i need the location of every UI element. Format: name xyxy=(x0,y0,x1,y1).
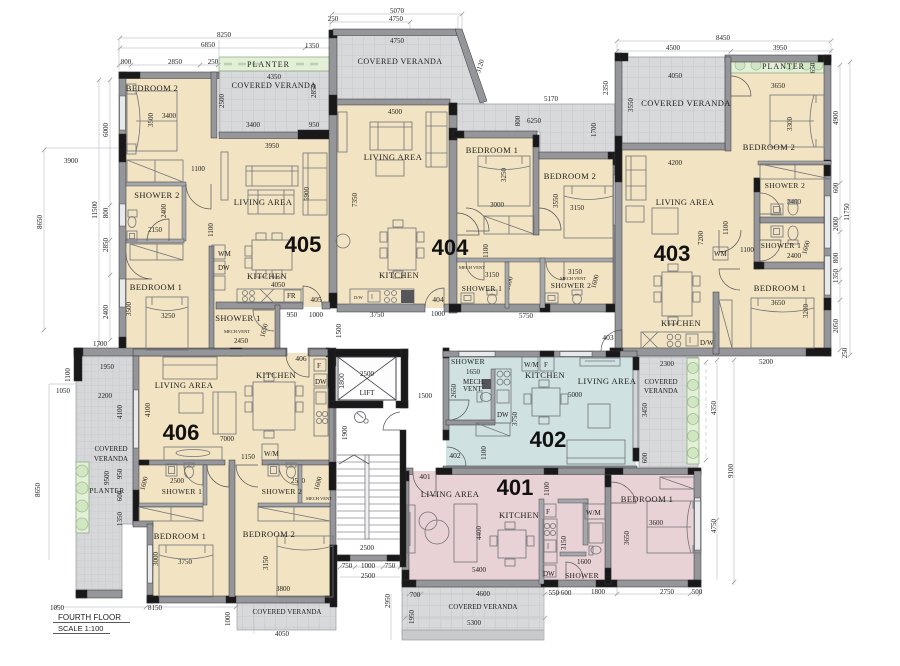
svg-text:SHOWER 2: SHOWER 2 xyxy=(262,487,303,496)
svg-text:KITCHEN: KITCHEN xyxy=(525,370,565,380)
svg-text:4100: 4100 xyxy=(144,403,152,418)
svg-text:3550: 3550 xyxy=(627,98,635,113)
svg-text:2400: 2400 xyxy=(787,198,802,206)
svg-text:4350: 4350 xyxy=(710,401,718,416)
svg-text:403: 403 xyxy=(602,333,614,342)
svg-text:SHOWER: SHOWER xyxy=(451,357,485,366)
svg-text:5170: 5170 xyxy=(544,95,559,103)
svg-text:4050: 4050 xyxy=(271,281,286,289)
svg-text:FOURTH FLOOR: FOURTH FLOOR xyxy=(58,613,121,622)
svg-text:403: 403 xyxy=(654,241,691,266)
svg-text:DW: DW xyxy=(497,411,509,419)
svg-text:BEDROOM 1: BEDROOM 1 xyxy=(466,145,518,155)
svg-text:750: 750 xyxy=(342,562,353,570)
svg-text:SCALE 1:100: SCALE 1:100 xyxy=(58,624,103,633)
svg-text:COVERED VERANDA: COVERED VERANDA xyxy=(449,603,518,611)
svg-text:3650: 3650 xyxy=(771,299,786,307)
svg-text:1100: 1100 xyxy=(207,223,215,237)
svg-text:PLANTER: PLANTER xyxy=(247,60,290,69)
svg-text:COVERED VERANDA: COVERED VERANDA xyxy=(358,57,443,66)
svg-text:KITCHEN: KITCHEN xyxy=(247,271,287,281)
svg-text:404: 404 xyxy=(432,295,444,304)
svg-text:2300: 2300 xyxy=(660,360,675,368)
svg-text:PLANTER: PLANTER xyxy=(90,487,125,495)
svg-text:5300: 5300 xyxy=(467,619,482,627)
svg-text:BEDROOM 2: BEDROOM 2 xyxy=(243,529,295,539)
svg-text:3500: 3500 xyxy=(147,113,155,128)
svg-text:BEDROOM 2: BEDROOM 2 xyxy=(743,142,795,152)
svg-text:BEDROOM 1: BEDROOM 1 xyxy=(154,531,206,541)
svg-text:LIVING AREA: LIVING AREA xyxy=(421,489,480,499)
svg-text:3150: 3150 xyxy=(560,536,568,551)
svg-text:4050: 4050 xyxy=(668,72,683,80)
svg-text:3950: 3950 xyxy=(773,44,788,52)
svg-text:1000: 1000 xyxy=(224,612,232,627)
svg-text:BEDROOM 2: BEDROOM 2 xyxy=(126,83,178,93)
svg-text:MECH VENT: MECH VENT xyxy=(560,276,586,281)
svg-text:3750: 3750 xyxy=(511,412,519,427)
svg-text:4050: 4050 xyxy=(275,630,290,638)
svg-text:3450: 3450 xyxy=(641,403,649,418)
svg-text:2400: 2400 xyxy=(787,252,802,260)
svg-text:3150: 3150 xyxy=(485,271,500,279)
svg-text:2200: 2200 xyxy=(98,392,113,400)
svg-text:1700: 1700 xyxy=(93,340,108,348)
svg-text:1100: 1100 xyxy=(191,165,205,173)
svg-text:WM: WM xyxy=(714,250,728,258)
svg-text:401: 401 xyxy=(497,475,534,500)
svg-text:LIVING AREA: LIVING AREA xyxy=(578,376,637,386)
svg-text:1100: 1100 xyxy=(482,244,490,258)
svg-text:W/M: W/M xyxy=(586,509,602,517)
svg-text:2950: 2950 xyxy=(384,594,392,609)
svg-text:2500: 2500 xyxy=(170,477,185,485)
svg-text:1700: 1700 xyxy=(590,123,598,138)
svg-text:5900: 5900 xyxy=(303,187,311,202)
svg-text:MECH VENT: MECH VENT xyxy=(224,329,250,334)
svg-text:700: 700 xyxy=(410,591,421,599)
svg-text:7000: 7000 xyxy=(220,435,235,443)
svg-text:550 600: 550 600 xyxy=(549,589,572,597)
svg-text:4400: 4400 xyxy=(475,526,483,541)
svg-text:2350: 2350 xyxy=(602,81,610,96)
svg-text:2500: 2500 xyxy=(360,370,375,378)
svg-text:800: 800 xyxy=(102,207,110,218)
svg-text:WM: WM xyxy=(218,250,232,258)
svg-text:COVERED VERANDA: COVERED VERANDA xyxy=(232,81,317,90)
svg-text:PLANTER: PLANTER xyxy=(762,62,805,71)
svg-text:250: 250 xyxy=(208,58,219,66)
svg-text:BEDROOM 1: BEDROOM 1 xyxy=(130,282,182,292)
svg-text:SHOWER 1: SHOWER 1 xyxy=(761,241,802,250)
svg-text:1950: 1950 xyxy=(100,363,115,371)
svg-text:LIVING AREA: LIVING AREA xyxy=(656,197,715,207)
svg-text:W/M: W/M xyxy=(524,361,540,369)
svg-text:3300: 3300 xyxy=(786,117,794,132)
svg-text:3600: 3600 xyxy=(649,519,664,527)
svg-text:COVERED VERANDA: COVERED VERANDA xyxy=(641,98,731,108)
svg-text:2000: 2000 xyxy=(832,217,840,232)
svg-text:D/W: D/W xyxy=(700,339,714,347)
svg-text:F: F xyxy=(546,508,550,516)
svg-text:2500: 2500 xyxy=(360,544,375,552)
svg-text:4600: 4600 xyxy=(476,590,491,598)
svg-text:2500: 2500 xyxy=(361,572,376,580)
svg-text:402: 402 xyxy=(449,451,461,460)
svg-text:1100: 1100 xyxy=(722,221,730,235)
svg-text:950: 950 xyxy=(309,121,320,129)
svg-text:8650: 8650 xyxy=(36,215,44,230)
svg-text:SHOWER 2: SHOWER 2 xyxy=(551,281,592,290)
svg-text:SHOWER 1: SHOWER 1 xyxy=(462,284,503,293)
svg-text:4750: 4750 xyxy=(389,15,404,23)
svg-text:MECH VENT: MECH VENT xyxy=(459,265,485,270)
svg-text:402: 402 xyxy=(530,427,567,452)
svg-text:DW: DW xyxy=(315,378,327,386)
svg-text:LIVING AREA: LIVING AREA xyxy=(364,152,423,162)
svg-text:3000: 3000 xyxy=(490,201,505,209)
svg-text:1800: 1800 xyxy=(591,588,606,596)
svg-text:2750: 2750 xyxy=(660,588,675,596)
svg-text:KITCHEN: KITCHEN xyxy=(661,318,701,328)
svg-text:1600: 1600 xyxy=(577,558,592,566)
svg-text:8650: 8650 xyxy=(34,483,42,498)
svg-text:4100: 4100 xyxy=(116,405,124,420)
svg-text:D/W: D/W xyxy=(354,295,364,300)
svg-text:5000: 5000 xyxy=(568,391,583,399)
svg-text:1100: 1100 xyxy=(543,482,551,496)
svg-text:405: 405 xyxy=(285,232,322,257)
svg-text:4500: 4500 xyxy=(388,108,403,116)
svg-text:1350: 1350 xyxy=(116,512,124,527)
svg-text:600: 600 xyxy=(641,452,649,463)
svg-text:1000: 1000 xyxy=(309,311,324,319)
svg-text:F: F xyxy=(544,361,548,369)
svg-text:1350: 1350 xyxy=(305,42,320,50)
svg-text:3950: 3950 xyxy=(265,142,280,150)
svg-text:406: 406 xyxy=(163,420,200,445)
svg-text:800: 800 xyxy=(514,115,522,126)
svg-text:1650: 1650 xyxy=(466,368,481,376)
svg-text:W/M: W/M xyxy=(264,450,280,458)
svg-text:SHOWER: SHOWER xyxy=(565,571,599,580)
svg-text:1100: 1100 xyxy=(740,246,754,254)
svg-text:1500: 1500 xyxy=(418,392,433,400)
svg-text:4750: 4750 xyxy=(710,519,718,534)
svg-text:8250: 8250 xyxy=(217,31,232,39)
svg-text:KITCHEN: KITCHEN xyxy=(379,270,419,280)
svg-text:1100: 1100 xyxy=(64,368,72,382)
svg-text:5070: 5070 xyxy=(390,7,405,15)
svg-text:4900: 4900 xyxy=(832,111,840,126)
svg-text:7350: 7350 xyxy=(351,193,359,208)
svg-text:5400: 5400 xyxy=(472,566,487,574)
svg-text:DW: DW xyxy=(218,264,230,272)
svg-text:401: 401 xyxy=(419,472,431,481)
svg-text:9100: 9100 xyxy=(727,464,735,479)
svg-text:VERANDA: VERANDA xyxy=(644,387,678,395)
svg-text:600: 600 xyxy=(832,182,840,193)
svg-text:BEDROOM 1: BEDROOM 1 xyxy=(754,283,806,293)
svg-text:8450: 8450 xyxy=(716,34,731,42)
svg-text:5750: 5750 xyxy=(519,312,534,320)
svg-text:3150: 3150 xyxy=(568,268,583,276)
svg-text:405: 405 xyxy=(310,295,322,304)
svg-text:COVERED VERANDA: COVERED VERANDA xyxy=(253,608,322,616)
svg-text:VERANDA: VERANDA xyxy=(94,455,128,463)
svg-text:4200: 4200 xyxy=(668,159,683,167)
svg-text:750: 750 xyxy=(385,562,396,570)
svg-text:2500: 2500 xyxy=(218,94,226,109)
svg-text:950: 950 xyxy=(116,468,124,479)
svg-text:2050: 2050 xyxy=(832,319,840,334)
svg-text:LIVING AREA: LIVING AREA xyxy=(155,380,214,390)
svg-text:2400: 2400 xyxy=(102,305,110,320)
svg-text:LIVING AREA: LIVING AREA xyxy=(234,197,293,207)
svg-text:2650: 2650 xyxy=(450,384,458,399)
svg-text:1050: 1050 xyxy=(56,387,71,395)
svg-text:9500: 9500 xyxy=(103,471,111,486)
svg-text:3650: 3650 xyxy=(623,531,631,546)
svg-text:250: 250 xyxy=(841,347,849,358)
svg-text:1900: 1900 xyxy=(341,426,349,441)
svg-text:2850: 2850 xyxy=(102,238,110,253)
svg-text:1000: 1000 xyxy=(431,310,446,318)
svg-text:COVERED: COVERED xyxy=(644,378,677,386)
svg-text:LIFT: LIFT xyxy=(360,389,376,397)
svg-text:KITCHEN: KITCHEN xyxy=(499,510,539,520)
svg-text:MECH VENT: MECH VENT xyxy=(306,496,332,501)
svg-text:650: 650 xyxy=(809,62,817,73)
svg-text:VENT.: VENT. xyxy=(463,385,483,393)
svg-text:7200: 7200 xyxy=(697,231,705,246)
svg-text:SHOWER 2: SHOWER 2 xyxy=(134,190,179,200)
svg-text:6000: 6000 xyxy=(102,123,110,138)
svg-text:SHOWER 1: SHOWER 1 xyxy=(215,313,260,323)
svg-text:F: F xyxy=(317,362,321,370)
svg-text:1950: 1950 xyxy=(408,610,416,625)
svg-text:6850: 6850 xyxy=(201,41,216,49)
svg-text:2450: 2450 xyxy=(234,337,249,345)
svg-text:FR: FR xyxy=(287,292,296,300)
svg-text:1050: 1050 xyxy=(50,604,65,612)
svg-text:3550: 3550 xyxy=(552,194,560,209)
svg-text:250: 250 xyxy=(328,15,339,23)
svg-text:800: 800 xyxy=(832,252,840,263)
svg-text:3800: 3800 xyxy=(276,585,291,593)
svg-text:3900: 3900 xyxy=(64,157,79,165)
svg-text:4750: 4750 xyxy=(390,37,405,45)
svg-text:800: 800 xyxy=(121,58,132,66)
svg-text:1000: 1000 xyxy=(361,562,376,570)
svg-text:1350: 1350 xyxy=(832,269,840,284)
svg-text:5200: 5200 xyxy=(759,358,774,366)
svg-text:COVERED: COVERED xyxy=(94,445,127,453)
svg-text:BEDROOM 1: BEDROOM 1 xyxy=(621,494,673,504)
svg-text:3400: 3400 xyxy=(246,121,261,129)
svg-text:6250: 6250 xyxy=(527,117,542,125)
svg-text:3150: 3150 xyxy=(262,556,270,571)
svg-text:1150: 1150 xyxy=(241,453,255,461)
svg-text:1500: 1500 xyxy=(335,324,343,339)
svg-text:11750: 11750 xyxy=(843,203,851,221)
svg-text:SHOWER 1: SHOWER 1 xyxy=(162,487,203,496)
svg-text:4350: 4350 xyxy=(267,73,282,81)
svg-text:500: 500 xyxy=(692,588,703,596)
svg-text:4500: 4500 xyxy=(666,44,681,52)
svg-text:8150: 8150 xyxy=(148,604,163,612)
svg-text:3650: 3650 xyxy=(771,82,786,90)
svg-text:11500: 11500 xyxy=(91,201,99,219)
svg-text:404: 404 xyxy=(432,235,469,260)
svg-text:950: 950 xyxy=(287,311,298,319)
svg-text:SHOWER 2: SHOWER 2 xyxy=(765,181,806,190)
svg-text:2850: 2850 xyxy=(168,58,183,66)
svg-text:KITCHEN: KITCHEN xyxy=(256,370,296,380)
svg-text:DW: DW xyxy=(543,570,555,578)
svg-text:1800: 1800 xyxy=(339,373,346,389)
svg-text:3250: 3250 xyxy=(161,312,176,320)
svg-text:2400: 2400 xyxy=(160,204,168,219)
svg-text:BEDROOM 2: BEDROOM 2 xyxy=(544,171,596,181)
svg-text:3400: 3400 xyxy=(162,112,177,120)
svg-text:1100: 1100 xyxy=(480,446,488,460)
svg-text:406: 406 xyxy=(295,354,307,363)
svg-text:3150: 3150 xyxy=(570,204,585,212)
